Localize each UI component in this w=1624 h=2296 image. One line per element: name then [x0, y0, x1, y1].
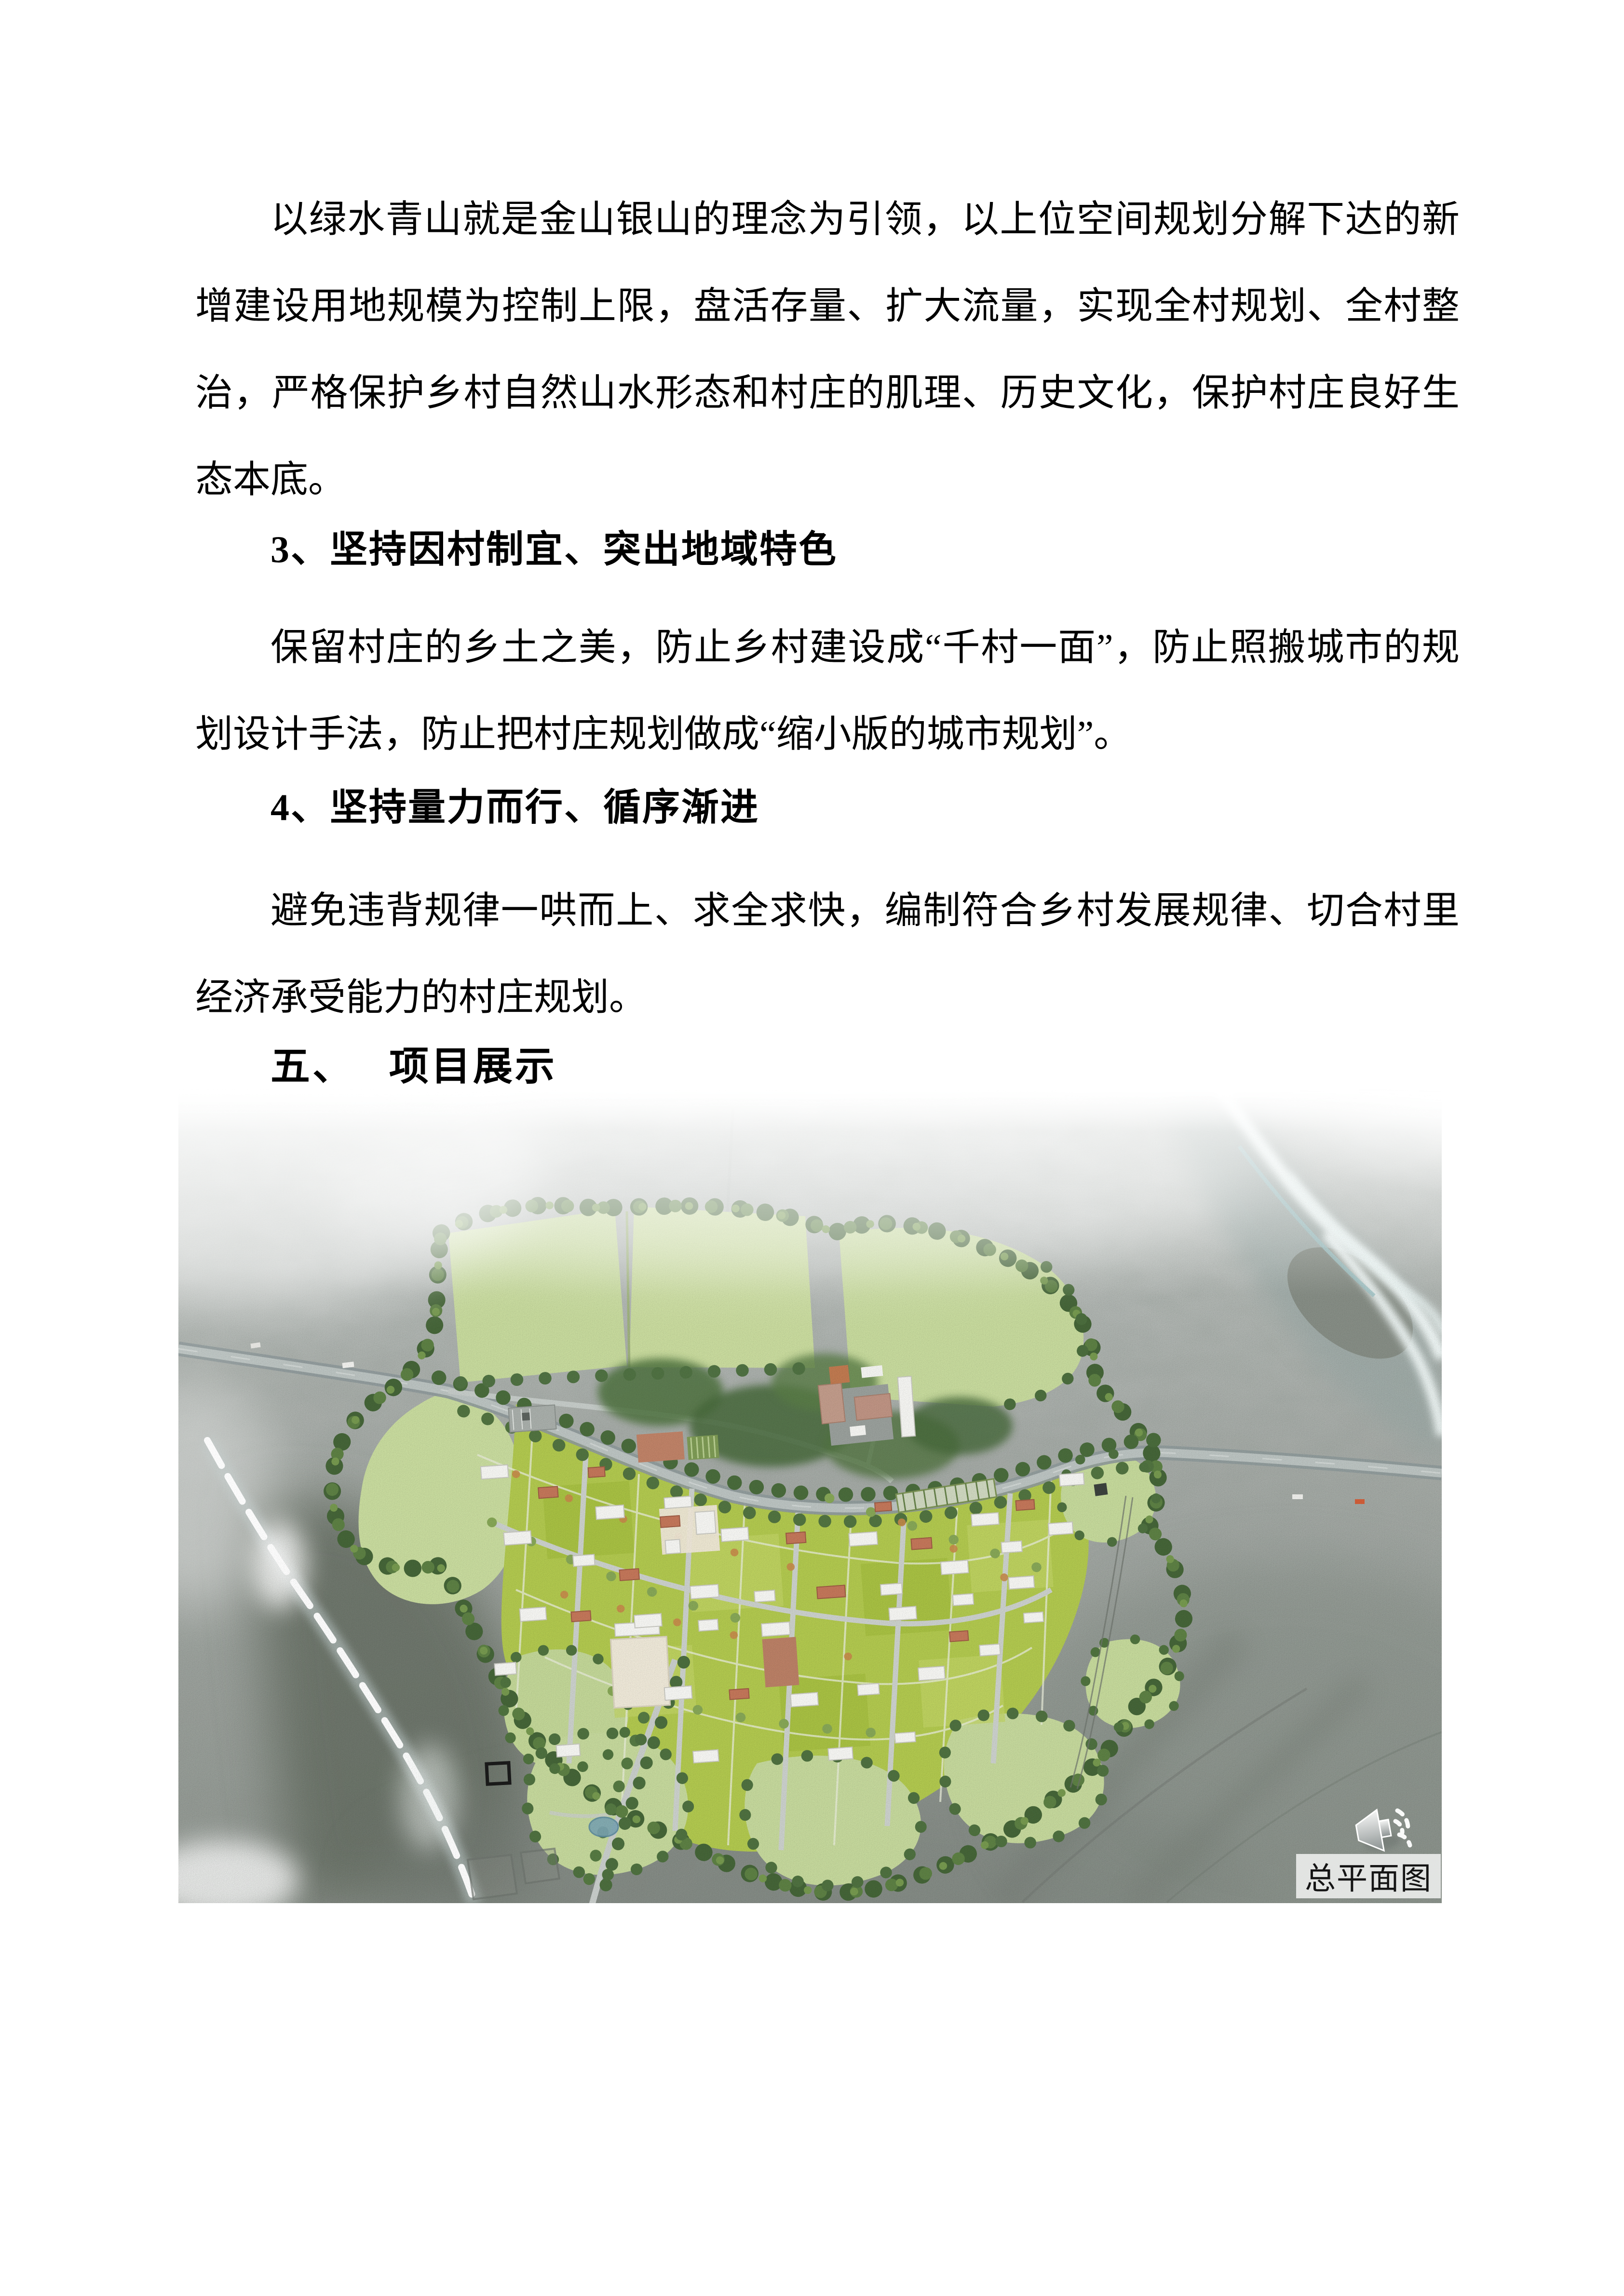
heading-section-5: 五、项目展示 — [271, 1040, 557, 1093]
heading-principle-4: 4、坚持量力而行、循序渐进 — [271, 781, 759, 834]
masterplan-aerial-figure: 总平面图 — [178, 1088, 1442, 1903]
paragraph-principle-4: 避免违背规律一哄而上、求全求快，编制符合乡村发展规律、切合村里经济承受能力的村庄… — [195, 867, 1460, 1041]
paragraph-principle-3: 保留村庄的乡土之美，防止乡村建设成“千村一面”，防止照搬城市的规划设计手法，防止… — [195, 604, 1460, 778]
heading-section-5-title: 项目展示 — [389, 1045, 557, 1088]
heading-section-5-number: 五、 — [271, 1045, 354, 1088]
heading-principle-3: 3、坚持因村制宜、突出地域特色 — [271, 523, 838, 576]
fog-haze — [323, 1098, 1239, 1281]
masterplan-rendering — [178, 1088, 1442, 1903]
document-page: 以绿水青山就是金山银山的理念为引领，以上位空间规划分解下达的新增建设用地规模为控… — [0, 0, 1624, 2296]
figure-caption-text: 总平面图 — [1305, 1854, 1432, 1898]
figure-caption: 总平面图 — [1296, 1854, 1441, 1898]
paragraph-guiding-principle: 以绿水青山就是金山银山的理念为引领，以上位空间规划分解下达的新增建设用地规模为控… — [195, 176, 1460, 523]
